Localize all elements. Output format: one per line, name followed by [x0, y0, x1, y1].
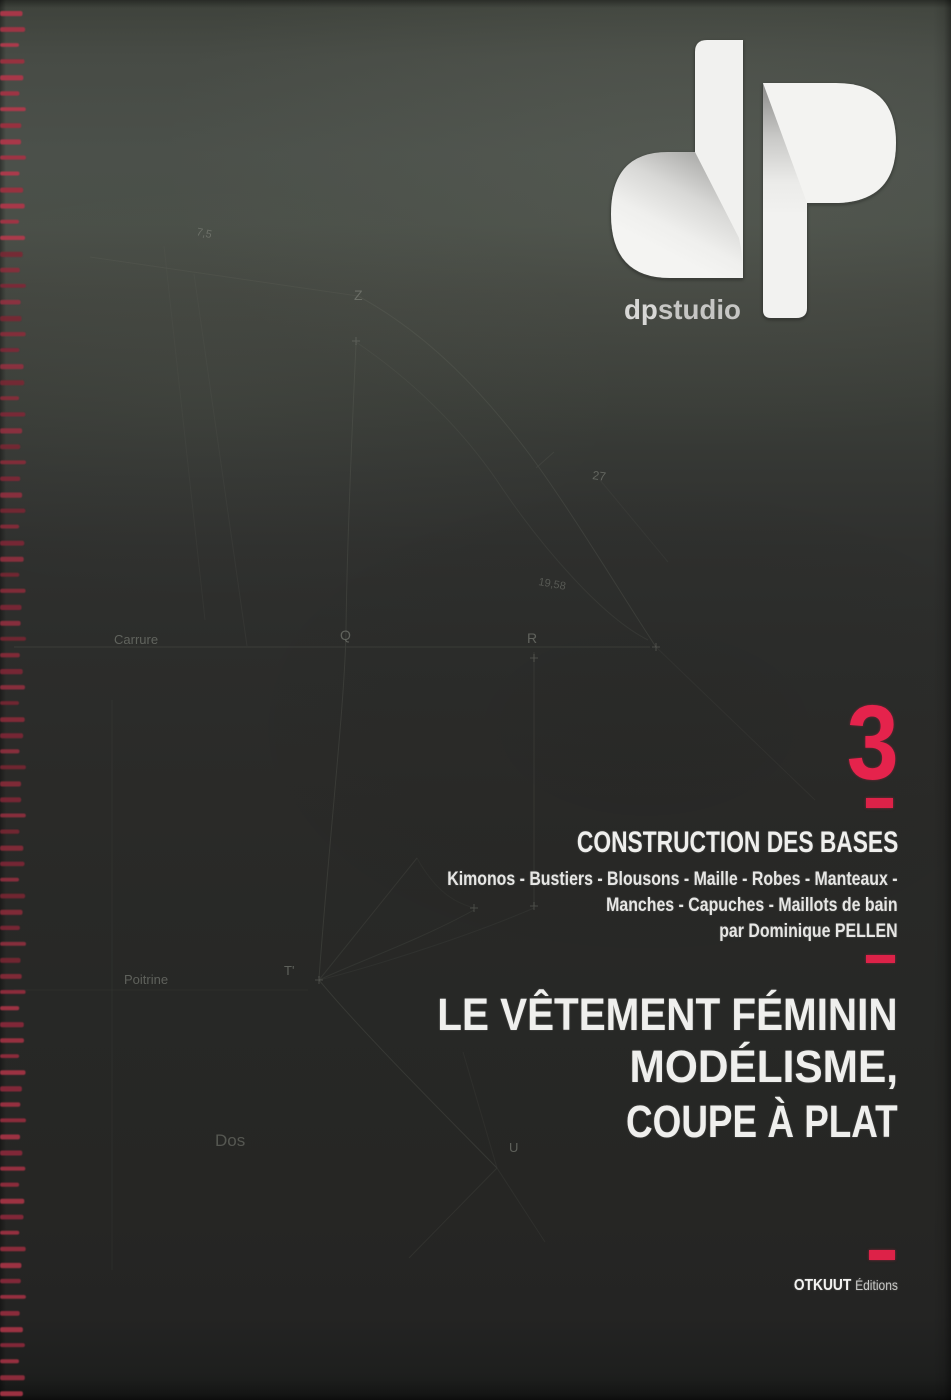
svg-text:7,5: 7,5: [195, 226, 212, 241]
svg-text:Z: Z: [354, 287, 363, 303]
svg-text:R: R: [527, 630, 537, 646]
svg-text:Carrure: Carrure: [114, 632, 158, 647]
svg-text:27: 27: [592, 468, 607, 484]
svg-text:T': T': [284, 963, 294, 978]
svg-text:Dos: Dos: [215, 1131, 245, 1150]
svg-text:19,58: 19,58: [537, 576, 566, 593]
svg-text:U: U: [509, 1140, 518, 1155]
svg-text:dpstudio: dpstudio: [624, 294, 741, 325]
svg-text:Q: Q: [340, 627, 351, 643]
svg-text:Poitrine: Poitrine: [124, 972, 168, 987]
